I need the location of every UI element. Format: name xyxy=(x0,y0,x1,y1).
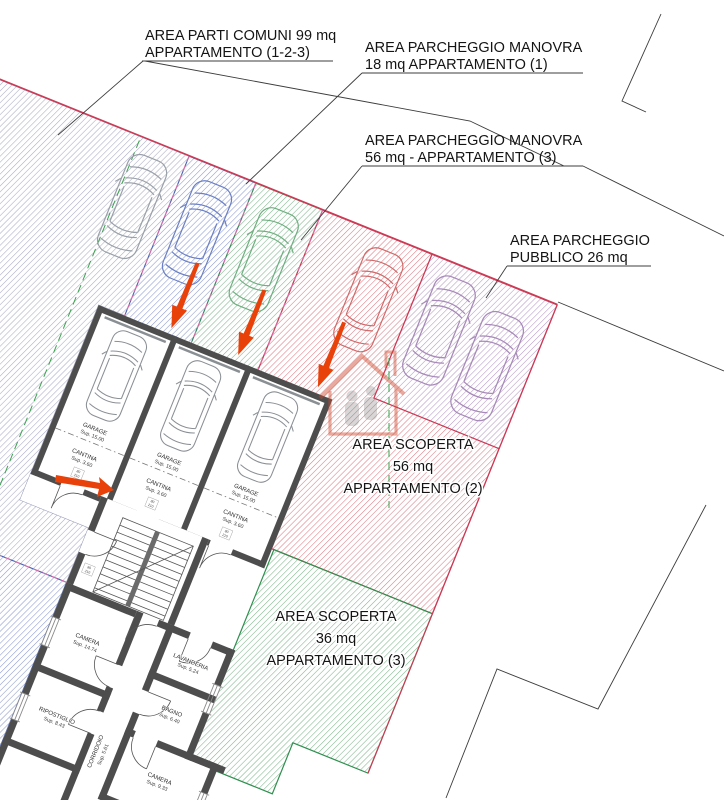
label-manovra3-1: AREA PARCHEGGIO MANOVRA xyxy=(365,133,583,149)
rotated-plan: GARAGE Sup. 15.00 GARAGE Sup. 15.00 GARA… xyxy=(0,77,557,800)
site-plan-svg: GARAGE Sup. 15.00 GARAGE Sup. 15.00 GARA… xyxy=(0,0,724,800)
label-pubblico-2: PUBBLICO 26 mq xyxy=(510,250,628,266)
site-plan-page: GARAGE Sup. 15.00 GARAGE Sup. 15.00 GARA… xyxy=(0,0,724,800)
label-parti-comuni-2: APPARTAMENTO (1-2-3) xyxy=(145,45,310,61)
label-scoperta2-3: APPARTAMENTO (2) xyxy=(343,481,482,497)
label-manovra3-2: 56 mq - APPARTAMENTO (3) xyxy=(365,150,557,166)
parcel-line xyxy=(558,302,724,371)
parcel-line xyxy=(622,14,661,112)
label-pubblico-1: AREA PARCHEGGIO xyxy=(510,233,650,249)
parcel-line xyxy=(446,505,706,798)
leader-line xyxy=(246,73,362,184)
label-scoperta3-3: APPARTAMENTO (3) xyxy=(266,653,405,669)
label-manovra1-2: 18 mq APPARTAMENTO (1) xyxy=(365,57,548,73)
label-scoperta3-2: 36 mq xyxy=(316,631,356,647)
label-manovra1-1: AREA PARCHEGGIO MANOVRA xyxy=(365,40,583,56)
label-scoperta2-2: 56 mq xyxy=(393,459,433,475)
parcel-line xyxy=(583,166,724,236)
label-scoperta2-1: AREA SCOPERTA xyxy=(352,437,473,453)
label-scoperta3-1: AREA SCOPERTA xyxy=(275,609,396,625)
label-parti-comuni-1: AREA PARTI COMUNI 99 mq xyxy=(145,28,336,44)
